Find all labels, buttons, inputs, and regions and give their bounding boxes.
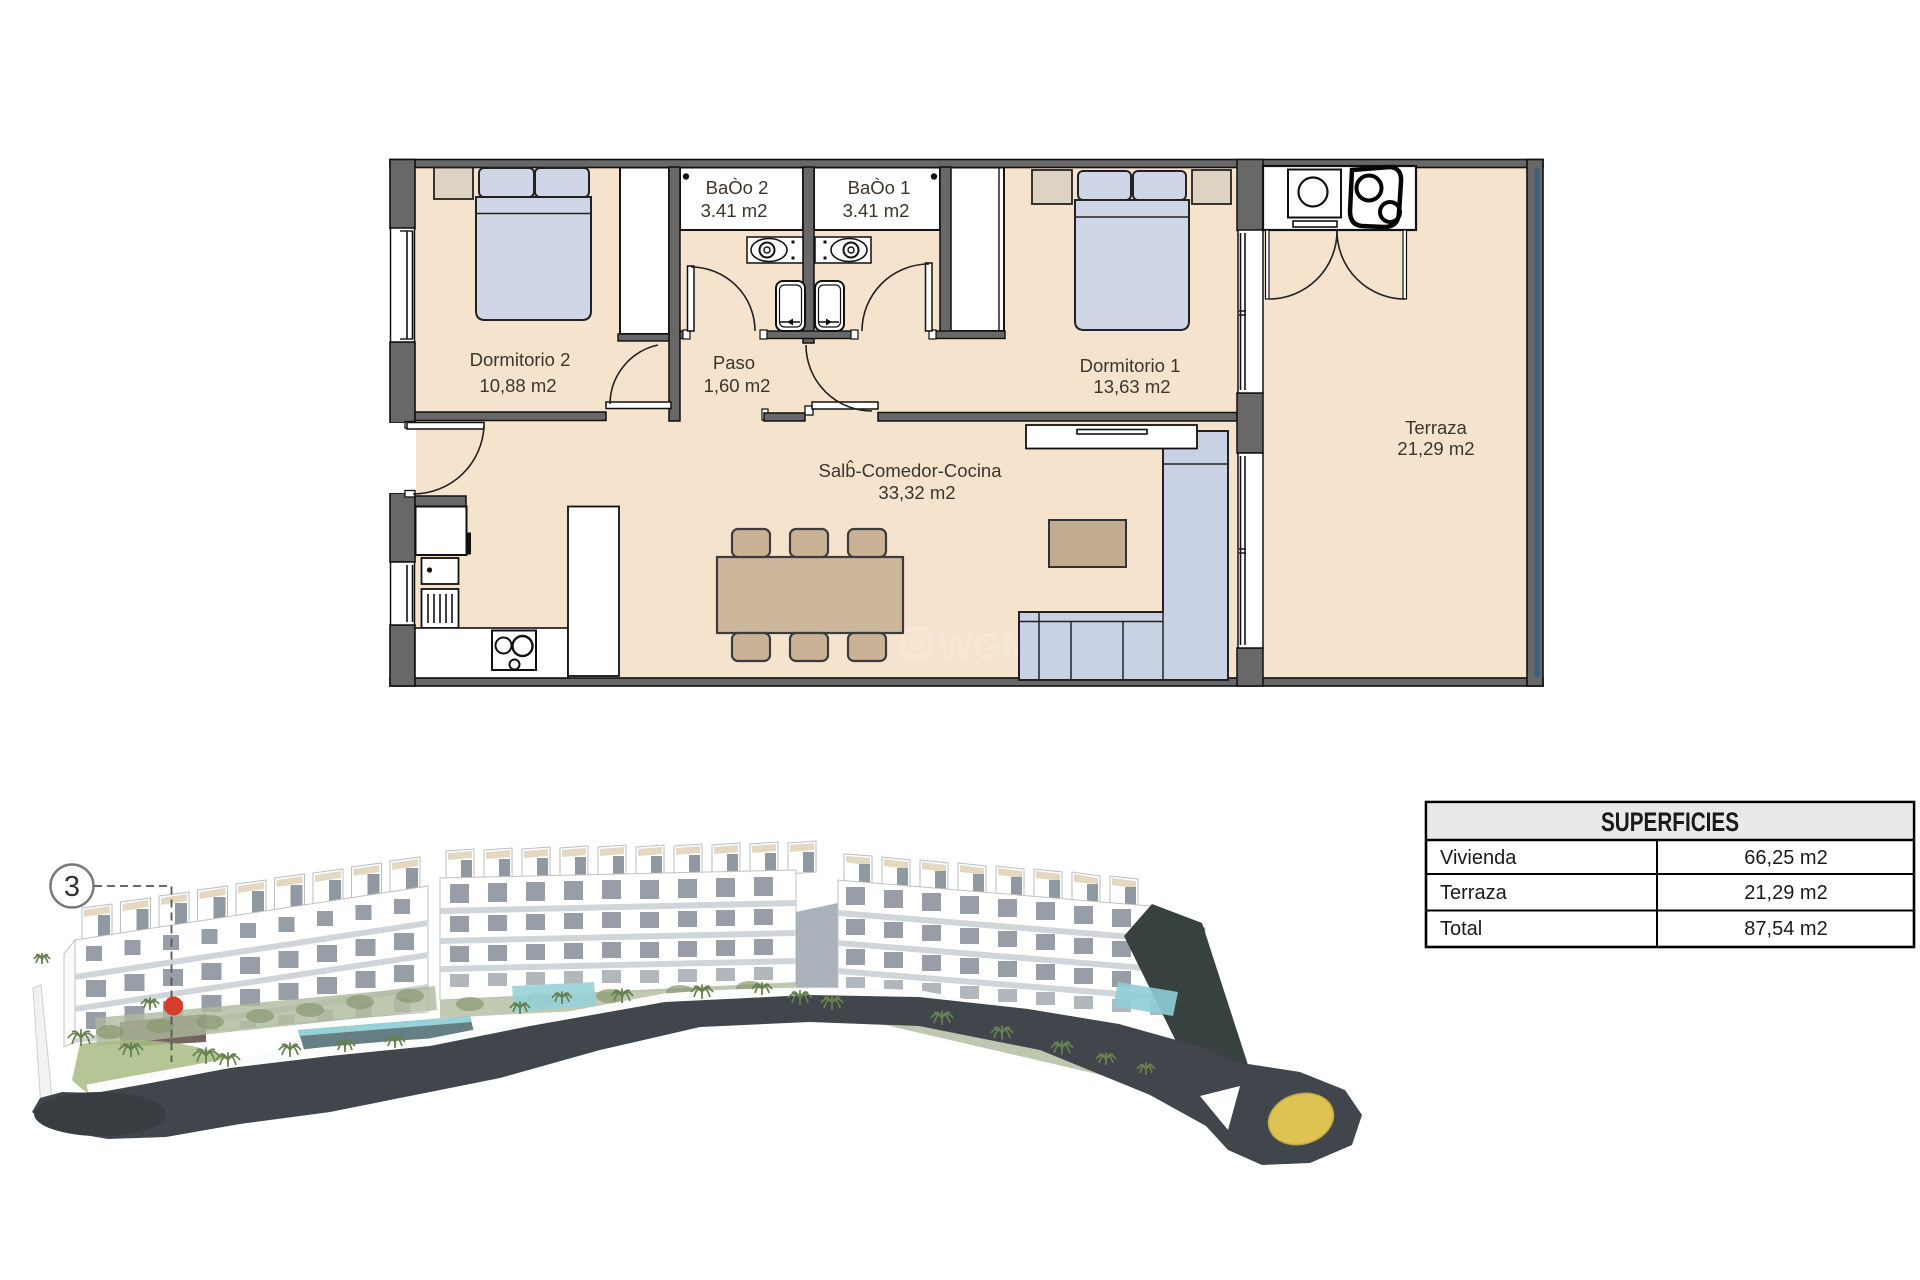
svg-text:Total: Total [1440,918,1482,940]
svg-text:13,63 m2: 13,63 m2 [1093,376,1170,397]
svg-text:1,60 m2: 1,60 m2 [704,375,771,396]
svg-text:21,29 m2: 21,29 m2 [1744,882,1827,904]
svg-text:BaÒo 2: BaÒo 2 [706,177,769,198]
svg-text:87,54 m2: 87,54 m2 [1744,918,1827,940]
svg-text:Vivienda: Vivienda [1440,847,1517,869]
svg-text:Salb̂-Comedor-Cocina: Salb̂-Comedor-Cocina [818,460,1002,481]
svg-text:SUPERFICIES: SUPERFICIES [1601,807,1739,837]
svg-text:33,32 m2: 33,32 m2 [878,482,955,503]
svg-text:3.41 m2: 3.41 m2 [701,200,768,221]
svg-text:66,25 m2: 66,25 m2 [1744,847,1827,869]
svg-text:Dormitorio 2: Dormitorio 2 [470,349,571,370]
svg-text:WGN: WGN [938,626,1028,667]
svg-text:BaÒo 1: BaÒo 1 [848,177,911,198]
svg-text:Dormitorio 1: Dormitorio 1 [1080,355,1181,376]
svg-text:Paso: Paso [713,352,755,373]
svg-text:3.41 m2: 3.41 m2 [843,200,910,221]
svg-text:Terraza: Terraza [1440,882,1508,904]
svg-text:Terraza: Terraza [1405,417,1467,438]
svg-text:21,29 m2: 21,29 m2 [1397,438,1474,459]
svg-text:10,88 m2: 10,88 m2 [479,375,556,396]
svg-text:3: 3 [64,871,80,903]
